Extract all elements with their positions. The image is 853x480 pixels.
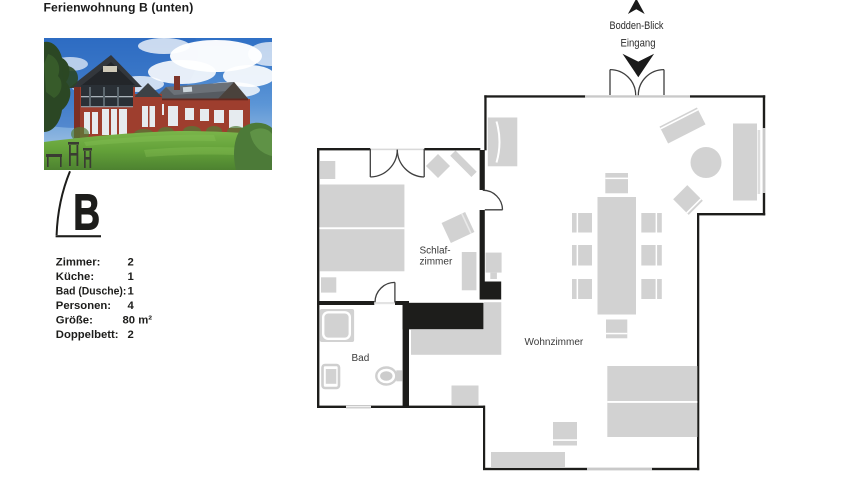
svg-text:Wohnzimmer: Wohnzimmer [525, 337, 584, 348]
svg-text:Eingang: Eingang [621, 37, 656, 49]
svg-text:Bad (Dusche):: Bad (Dusche): [56, 286, 127, 298]
svg-text:1: 1 [128, 286, 134, 298]
svg-text:zimmer: zimmer [420, 257, 453, 268]
svg-text:Bodden-Blick: Bodden-Blick [610, 20, 664, 32]
svg-text:1: 1 [128, 271, 134, 283]
svg-text:Größe:: Größe: [56, 315, 93, 327]
svg-text:80 m²: 80 m² [123, 315, 153, 327]
svg-text:Doppelbett:: Doppelbett: [56, 329, 119, 341]
svg-text:Schlaf-: Schlaf- [420, 246, 451, 257]
svg-text:Bad: Bad [352, 353, 370, 364]
svg-text:4: 4 [128, 300, 135, 312]
svg-text:2: 2 [128, 257, 134, 269]
svg-text:Personen:: Personen: [56, 300, 111, 312]
svg-text:Küche:: Küche: [56, 271, 94, 283]
svg-text:Ferienwohnung B (unten): Ferienwohnung B (unten) [44, 0, 194, 14]
svg-text:Zimmer:: Zimmer: [56, 257, 101, 269]
svg-text:B: B [73, 185, 100, 241]
svg-text:2: 2 [128, 329, 134, 341]
